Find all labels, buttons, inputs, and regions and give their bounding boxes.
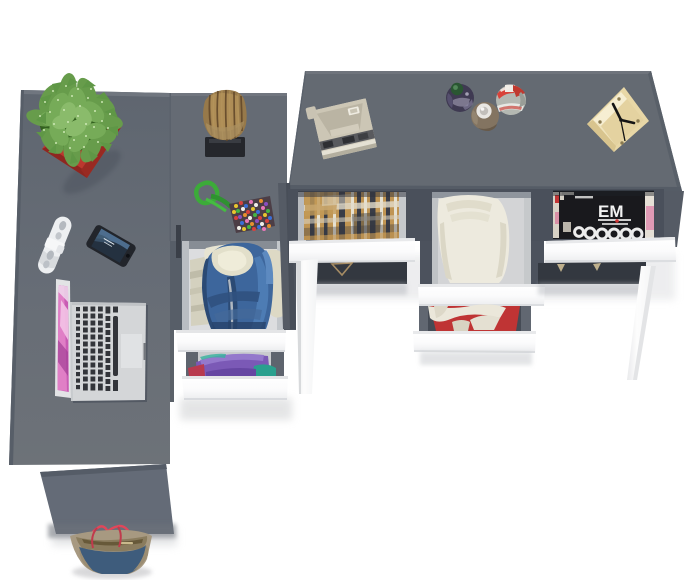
svg-text:EM: EM	[598, 202, 624, 221]
